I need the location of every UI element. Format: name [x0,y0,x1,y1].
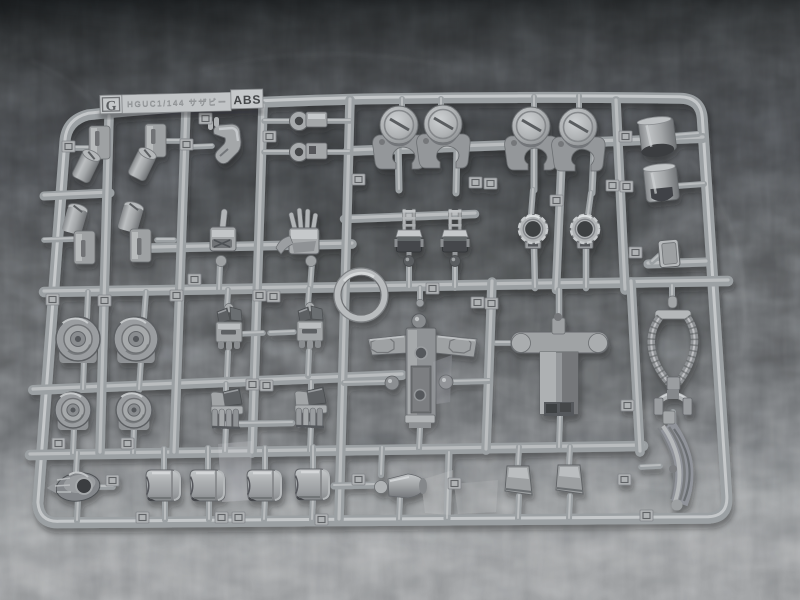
svg-text:G: G [105,99,116,114]
svg-text:ABS: ABS [233,93,260,108]
